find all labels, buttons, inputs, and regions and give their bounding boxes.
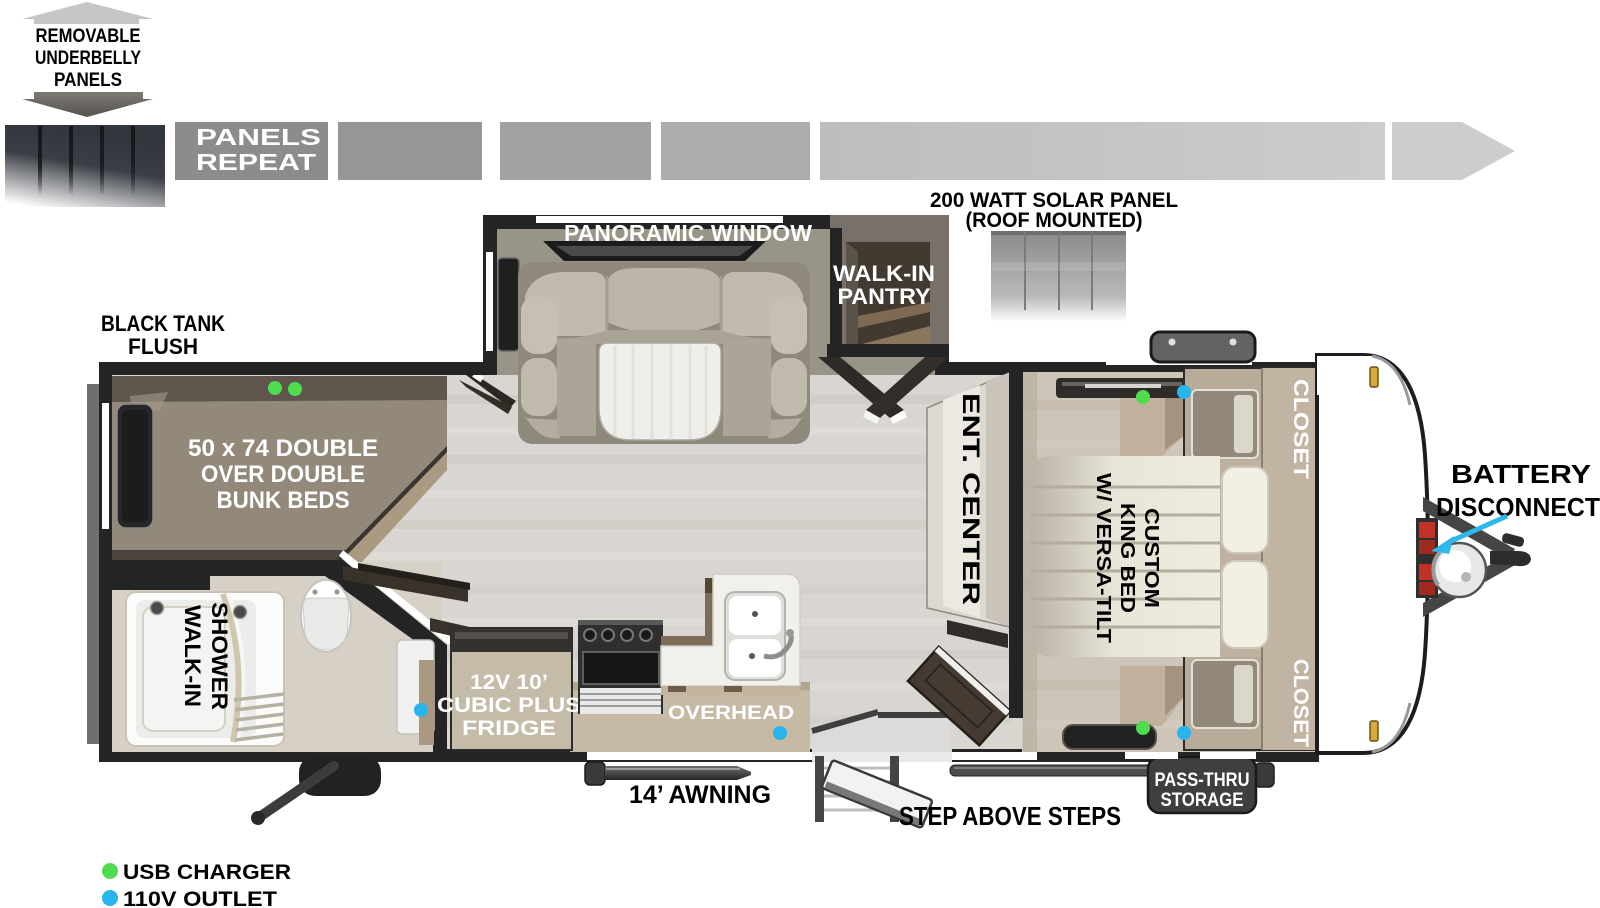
svg-text:SHOWER: SHOWER bbox=[207, 602, 232, 710]
svg-text:OVERHEAD: OVERHEAD bbox=[668, 703, 794, 724]
svg-text:ENT. CENTER: ENT. CENTER bbox=[957, 393, 984, 605]
svg-text:PASS-THRU: PASS-THRU bbox=[1155, 770, 1250, 791]
svg-text:FLUSH: FLUSH bbox=[128, 334, 198, 359]
svg-text:PANELS: PANELS bbox=[196, 124, 321, 150]
svg-text:STORAGE: STORAGE bbox=[1161, 790, 1244, 811]
svg-text:PANTRY: PANTRY bbox=[838, 284, 931, 309]
svg-text:BATTERY: BATTERY bbox=[1451, 459, 1591, 489]
svg-text:110V OUTLET: 110V OUTLET bbox=[123, 888, 277, 908]
svg-text:STEP ABOVE STEPS: STEP ABOVE STEPS bbox=[899, 801, 1121, 831]
svg-text:FRIDGE: FRIDGE bbox=[462, 717, 556, 740]
svg-text:OVER DOUBLE: OVER DOUBLE bbox=[201, 461, 365, 488]
svg-text:KING BED: KING BED bbox=[1116, 503, 1138, 613]
svg-text:UNDERBELLY: UNDERBELLY bbox=[35, 48, 141, 69]
svg-text:CLOSET: CLOSET bbox=[1289, 379, 1312, 479]
svg-text:BLACK TANK: BLACK TANK bbox=[101, 311, 225, 336]
svg-text:DISCONNECT: DISCONNECT bbox=[1436, 492, 1600, 522]
svg-text:CUBIC PLUS: CUBIC PLUS bbox=[437, 694, 581, 717]
svg-text:PANELS: PANELS bbox=[54, 70, 122, 91]
svg-text:BUNK BEDS: BUNK BEDS bbox=[217, 487, 350, 514]
svg-text:(ROOF MOUNTED): (ROOF MOUNTED) bbox=[966, 209, 1143, 232]
svg-text:CUSTOM: CUSTOM bbox=[1140, 508, 1162, 608]
svg-text:WALK-IN: WALK-IN bbox=[833, 261, 935, 286]
svg-text:REMOVABLE: REMOVABLE bbox=[36, 26, 141, 47]
svg-text:PANORAMIC WINDOW: PANORAMIC WINDOW bbox=[564, 220, 812, 246]
svg-text:12V 10’: 12V 10’ bbox=[470, 671, 548, 694]
svg-text:CLOSET: CLOSET bbox=[1289, 659, 1312, 747]
svg-text:W/ VERSA-TILT: W/ VERSA-TILT bbox=[1092, 473, 1114, 643]
svg-text:50 x 74 DOUBLE: 50 x 74 DOUBLE bbox=[188, 435, 378, 462]
svg-text:REPEAT: REPEAT bbox=[196, 149, 316, 175]
svg-text:14’ AWNING: 14’ AWNING bbox=[629, 781, 771, 809]
svg-text:USB CHARGER: USB CHARGER bbox=[123, 861, 291, 884]
svg-text:WALK-IN: WALK-IN bbox=[180, 605, 205, 707]
